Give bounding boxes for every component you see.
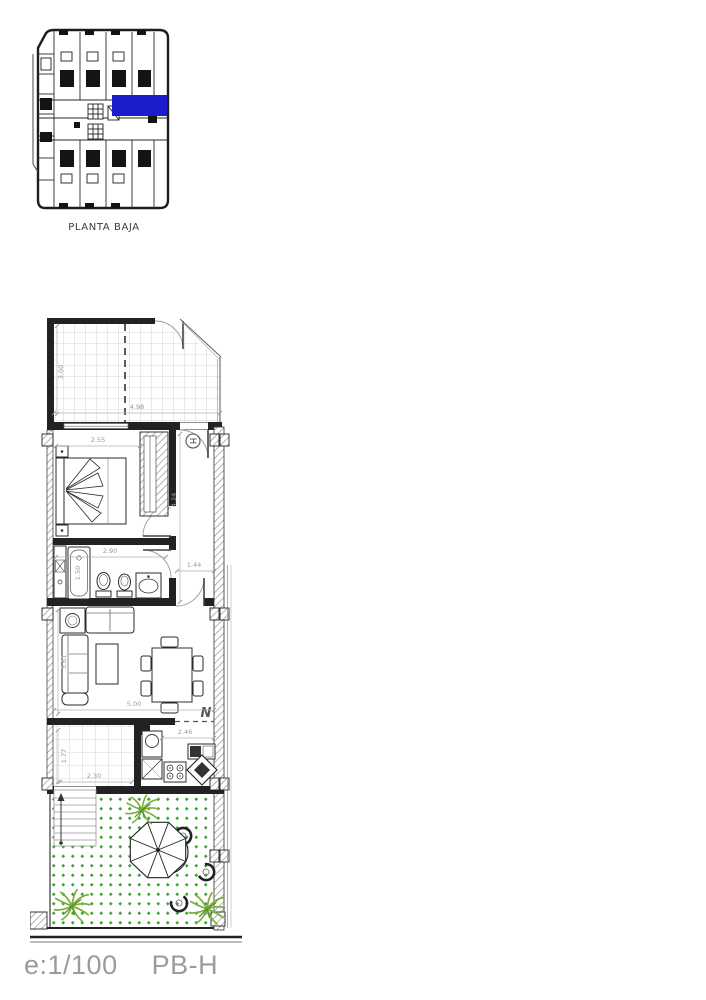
coffee-table (96, 644, 118, 684)
entrance-label: H (187, 438, 197, 444)
kitchen (142, 731, 217, 785)
dim-bathroom-width: 2.90 (103, 547, 117, 555)
dim-kitchen-width: 2.46 (178, 728, 192, 736)
bath-cabinet (54, 546, 66, 598)
bedroom (56, 432, 168, 536)
key-plan-thumbnail (28, 14, 180, 220)
title-block: e:1/100 PB-H (24, 950, 218, 981)
toilet (96, 573, 111, 598)
dim-hall-width: 1.44 (187, 561, 201, 569)
dining-set (141, 637, 203, 713)
dim-living-depth: 3.61 (60, 655, 68, 669)
stairs (54, 790, 96, 846)
plan-sheet: PLANTA BAJA (0, 0, 706, 1000)
plan-code: PB-H (152, 950, 219, 980)
kitchen-sink-unit (142, 731, 162, 779)
dim-patio-depth: 1.77 (60, 749, 68, 763)
north-symbol: N (201, 706, 212, 721)
selected-unit-highlight (112, 95, 167, 116)
dim-hall-length: 4.24 (170, 493, 178, 507)
entrance-hall: H (186, 434, 200, 448)
dim-bathtub-length: 1.50 (74, 566, 82, 580)
dim-terrace-depth: 3.00 (57, 365, 65, 379)
scale-label: e:1/100 (24, 950, 118, 980)
stove (164, 762, 186, 782)
dim-terrace-width: 4.98 (130, 403, 144, 411)
dim-living-width: 5.00 (127, 700, 141, 708)
dim-bedroom-width: 2.55 (91, 436, 105, 444)
wardrobe (140, 432, 168, 516)
bathroom-sink (136, 573, 161, 598)
bed (56, 458, 126, 524)
dim-patio-width: 2.30 (87, 772, 101, 780)
bidet (117, 574, 132, 597)
key-plan-caption: PLANTA BAJA (28, 222, 180, 233)
washing-machine (60, 608, 85, 633)
floor-plan: H (30, 310, 245, 950)
